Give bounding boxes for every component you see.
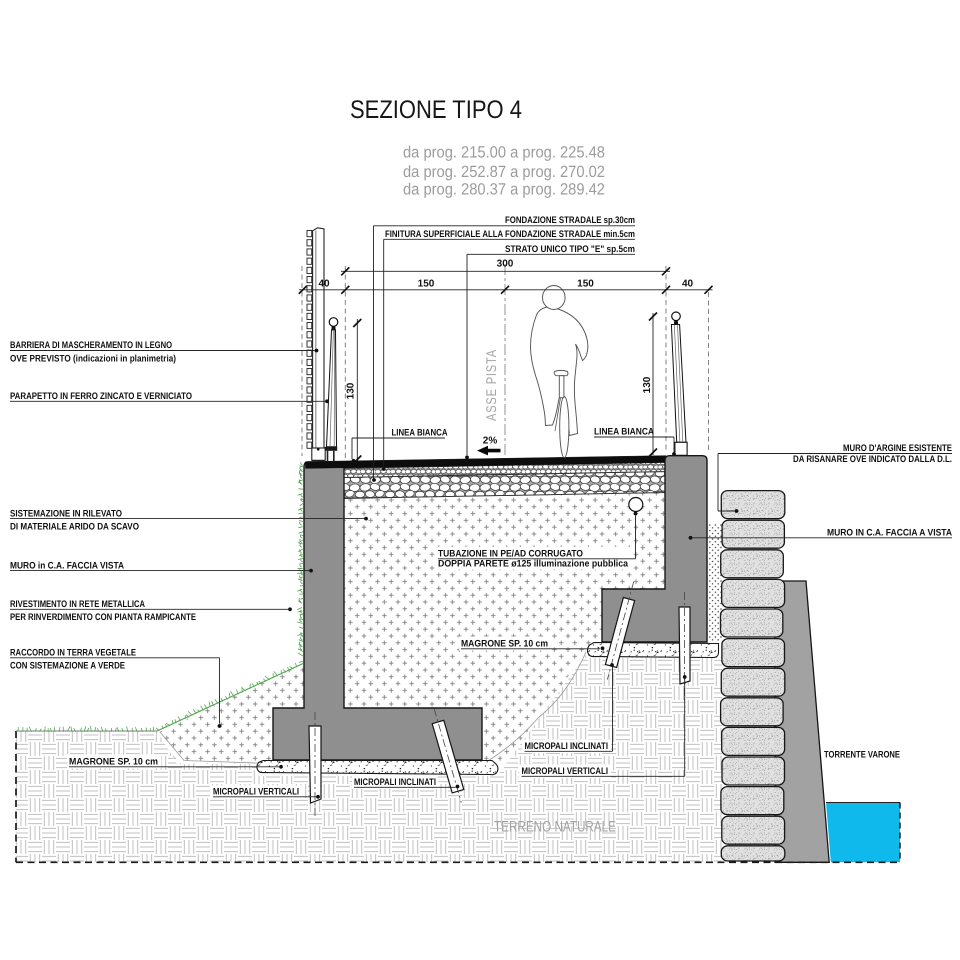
svg-text:FONDAZIONE STRADALE sp.30cm: FONDAZIONE STRADALE sp.30cm (505, 215, 635, 226)
svg-text:MICROPALI INCLINATI: MICROPALI INCLINATI (354, 777, 436, 788)
svg-text:MURO D'ARGINE ESISTENTE: MURO D'ARGINE ESISTENTE (843, 443, 952, 454)
svg-text:MICROPALI VERTICALI: MICROPALI VERTICALI (213, 787, 299, 798)
svg-text:MAGRONE SP. 10 cm: MAGRONE SP. 10 cm (461, 639, 548, 650)
svg-text:BARRIERA DI MASCHERAMENTO IN L: BARRIERA DI MASCHERAMENTO IN LEGNO (10, 340, 172, 351)
svg-text:150: 150 (577, 279, 594, 290)
svg-text:DOPPIA PARETE ø125 illuminazio: DOPPIA PARETE ø125 illuminazione pubblic… (438, 559, 629, 570)
svg-text:PER RINVERDIMENTO CON PIANTA R: PER RINVERDIMENTO CON PIANTA RAMPICANTE (10, 612, 196, 623)
svg-text:PARAPETTO IN FERRO ZINCATO E V: PARAPETTO IN FERRO ZINCATO E VERNICIATO (10, 391, 192, 402)
svg-text:MICROPALI INCLINATI: MICROPALI INCLINATI (525, 741, 609, 752)
svg-text:130: 130 (642, 376, 653, 393)
svg-text:130: 130 (345, 382, 356, 399)
svg-text:FINITURA SUPERFICIALE ALLA FON: FINITURA SUPERFICIALE ALLA FONDAZIONE ST… (385, 229, 635, 240)
svg-text:TORRENTE VARONE: TORRENTE VARONE (824, 750, 900, 761)
svg-text:MURO in C.A. FACCIA VISTA: MURO in C.A. FACCIA VISTA (10, 561, 124, 572)
svg-text:SISTEMAZIONE IN RILEVATO: SISTEMAZIONE IN RILEVATO (10, 509, 122, 520)
svg-text:DA RISANARE OVE INDICATO DALLA: DA RISANARE OVE INDICATO DALLA D.L. (793, 454, 952, 465)
svg-text:MAGRONE SP. 10 cm: MAGRONE SP. 10 cm (69, 757, 158, 768)
svg-text:LINEA BIANCA: LINEA BIANCA (594, 427, 654, 438)
svg-text:da prog. 252.87 a prog. 270.02: da prog. 252.87 a prog. 270.02 (403, 163, 605, 181)
svg-text:RACCORDO IN TERRA VEGETALE: RACCORDO IN TERRA VEGETALE (10, 648, 136, 659)
svg-text:DI MATERIALE ARIDO DA SCAVO: DI MATERIALE ARIDO DA SCAVO (10, 522, 139, 533)
svg-text:40: 40 (318, 279, 330, 290)
svg-text:150: 150 (418, 279, 435, 290)
svg-text:300: 300 (497, 259, 514, 270)
svg-text:RIVESTIMENTO IN RETE METALLICA: RIVESTIMENTO IN RETE METALLICA (10, 599, 145, 610)
svg-text:STRATO UNICO TIPO "E" sp.5cm: STRATO UNICO TIPO "E" sp.5cm (505, 244, 635, 255)
svg-text:da prog. 215.00 a prog. 225.48: da prog. 215.00 a prog. 225.48 (403, 144, 605, 162)
svg-text:SEZIONE TIPO 4: SEZIONE TIPO 4 (350, 96, 522, 124)
svg-text:TERRENO NATURALE: TERRENO NATURALE (494, 819, 616, 836)
svg-text:2%: 2% (483, 436, 498, 447)
svg-text:OVE PREVISTO (indicazioni in p: OVE PREVISTO (indicazioni in planimetria… (10, 354, 176, 365)
svg-text:40: 40 (682, 279, 694, 290)
svg-text:MICROPALI VERTICALI: MICROPALI VERTICALI (522, 766, 609, 777)
svg-text:LINEA BIANCA: LINEA BIANCA (392, 428, 448, 439)
svg-text:ASSE PISTA: ASSE PISTA (483, 349, 499, 421)
svg-text:CON SISTEMAZIONE A VERDE: CON SISTEMAZIONE A VERDE (10, 661, 125, 672)
svg-text:da prog. 280.37 a prog. 289.42: da prog. 280.37 a prog. 289.42 (403, 181, 605, 199)
svg-text:MURO IN C.A. FACCIA A VISTA: MURO IN C.A. FACCIA A VISTA (827, 528, 952, 539)
